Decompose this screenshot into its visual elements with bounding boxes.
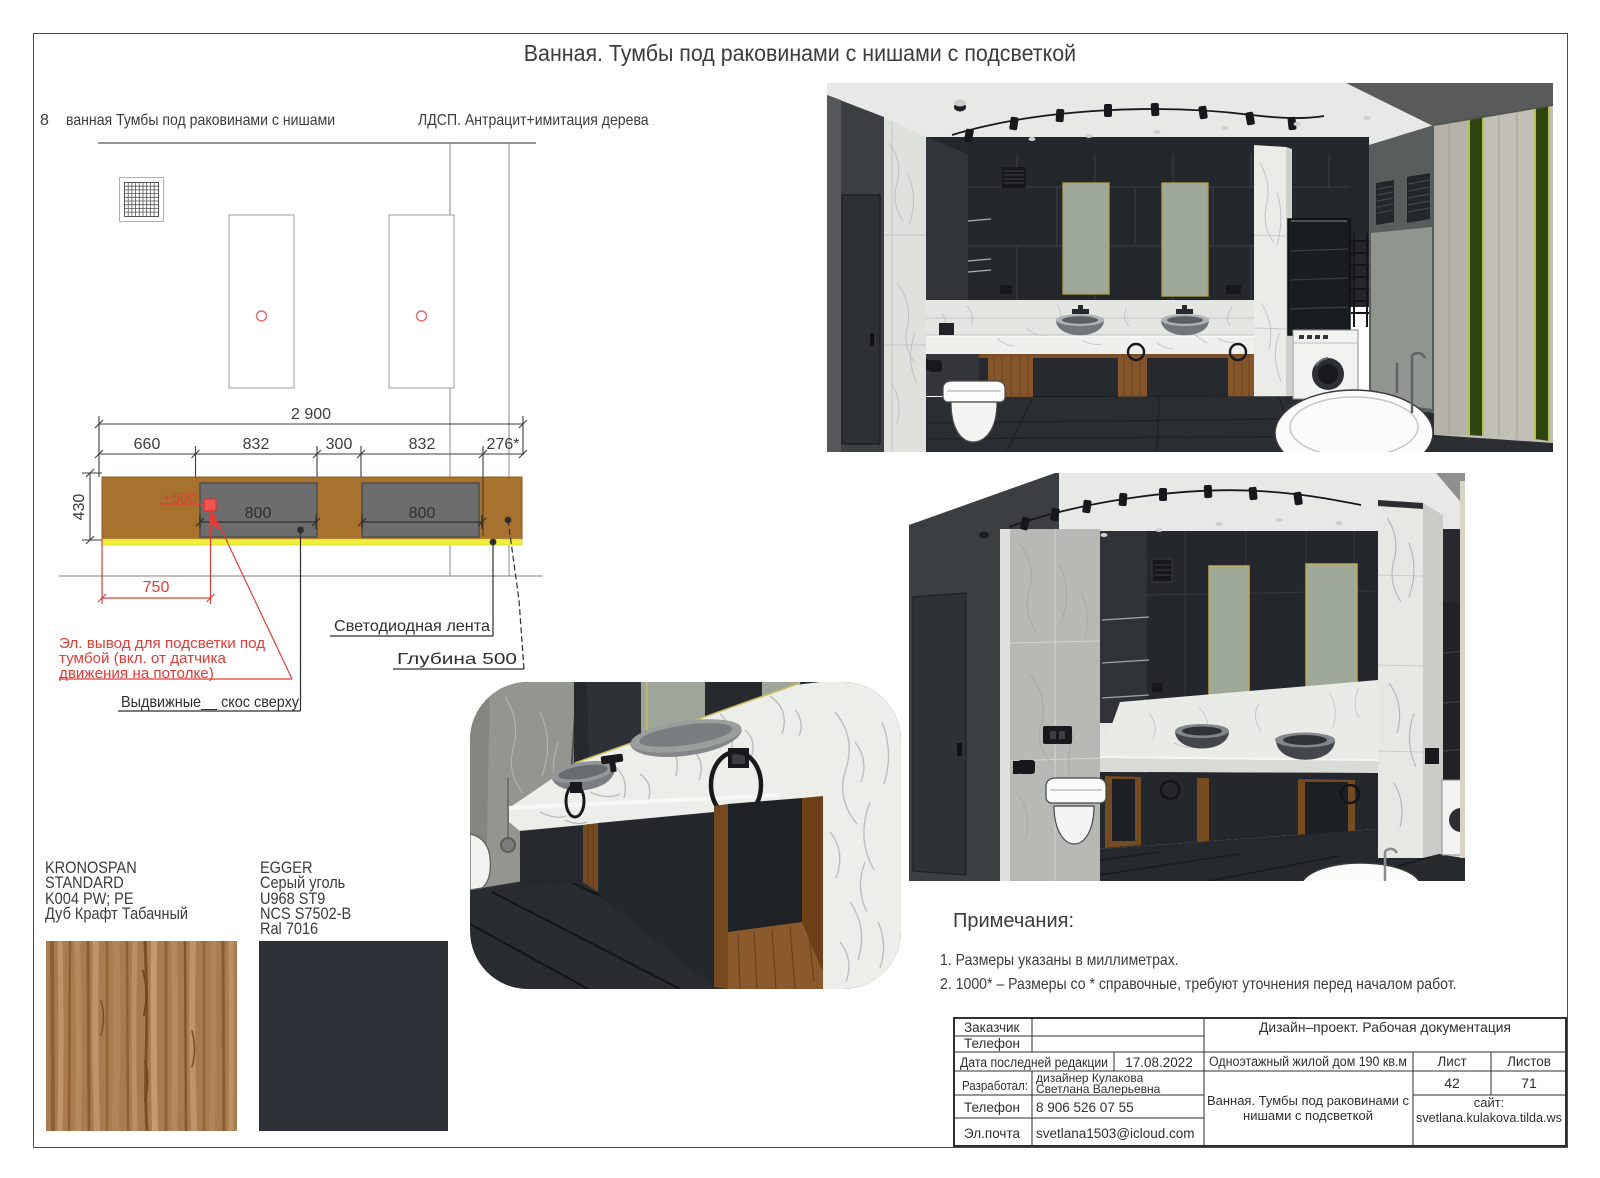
svg-text:сайт:: сайт: <box>1474 1095 1505 1110</box>
svg-text:Телефон: Телефон <box>964 1100 1020 1115</box>
svg-text:Эл.почта: Эл.почта <box>964 1126 1020 1141</box>
svg-text:430: 430 <box>71 494 88 521</box>
svg-text:Ванная. Тумбы под раковинами с: Ванная. Тумбы под раковинами с <box>1207 1093 1410 1108</box>
svg-text:42: 42 <box>1444 1075 1460 1091</box>
svg-text:276*: 276* <box>487 436 520 453</box>
svg-text:Разработал:: Разработал: <box>962 1078 1028 1093</box>
svg-text:17.08.2022: 17.08.2022 <box>1125 1055 1193 1070</box>
svg-text:Одноэтажный жилой дом 190 кв.м: Одноэтажный жилой дом 190 кв.м <box>1209 1054 1407 1069</box>
svg-text:300: 300 <box>326 436 353 453</box>
svg-text:svetlana.kulakova.tilda.ws: svetlana.kulakova.tilda.ws <box>1416 1110 1562 1125</box>
svg-text:8 906 526 07 55: 8 906 526 07 55 <box>1036 1100 1134 1115</box>
svg-text:Лист: Лист <box>1437 1054 1466 1069</box>
svg-text:нишами с подсветкой: нишами с подсветкой <box>1243 1108 1373 1123</box>
svg-text:2 900: 2 900 <box>291 406 331 423</box>
svg-text:832: 832 <box>243 436 270 453</box>
svg-text:Дизайн–проект. Рабочая докумен: Дизайн–проект. Рабочая документация <box>1259 1019 1511 1035</box>
svg-text:Дата последней редакции: Дата последней редакции <box>960 1055 1108 1070</box>
svg-text:Телефон: Телефон <box>964 1036 1020 1051</box>
svg-text:Эл. вывод для подсветки подтум: Эл. вывод для подсветки подтумбой (вкл. … <box>59 635 265 682</box>
svg-text:Листов: Листов <box>1507 1054 1551 1069</box>
svg-text:71: 71 <box>1521 1075 1537 1091</box>
svg-text:800: 800 <box>409 505 436 522</box>
svg-text:660: 660 <box>134 436 161 453</box>
svg-text:832: 832 <box>409 436 436 453</box>
svg-text:Глубина 500: Глубина 500 <box>397 651 517 668</box>
svg-text:Светлана Валерьевна: Светлана Валерьевна <box>1036 1082 1161 1096</box>
svg-text:750: 750 <box>143 579 170 596</box>
svg-text:800: 800 <box>245 505 272 522</box>
svg-text:Светодиодная лента: Светодиодная лента <box>334 618 490 635</box>
svg-text:Выдвижные__ скос сверху: Выдвижные__ скос сверху <box>121 694 299 711</box>
svg-text:svetlana1503@icloud.com: svetlana1503@icloud.com <box>1036 1126 1195 1141</box>
svg-text:Заказчик: Заказчик <box>964 1020 1020 1035</box>
